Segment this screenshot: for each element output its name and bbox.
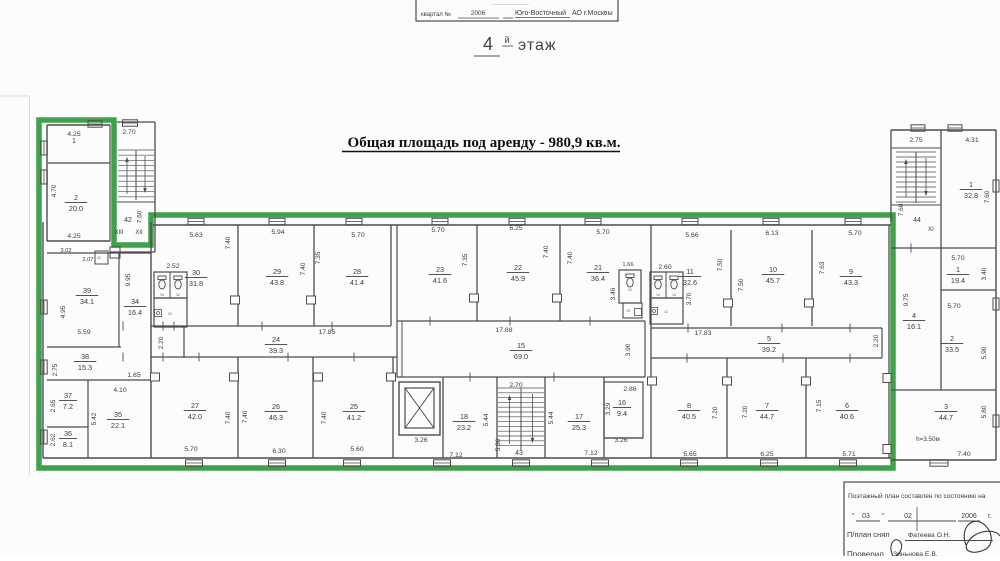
svg-text:44.7: 44.7 bbox=[939, 413, 953, 422]
svg-text:ХII: ХII bbox=[135, 230, 143, 236]
svg-text:17.85: 17.85 bbox=[318, 329, 335, 336]
svg-text:квартал №: квартал № bbox=[421, 11, 451, 18]
svg-text:1.66: 1.66 bbox=[622, 262, 633, 268]
svg-text:4.10: 4.10 bbox=[113, 387, 126, 394]
svg-text:42.0: 42.0 bbox=[188, 412, 202, 421]
svg-text:5.59: 5.59 bbox=[77, 329, 90, 336]
svg-text:4.31: 4.31 bbox=[965, 137, 978, 144]
svg-text:5.70: 5.70 bbox=[184, 446, 197, 453]
svg-text:7.60: 7.60 bbox=[137, 210, 144, 223]
svg-text:22: 22 bbox=[514, 263, 522, 272]
svg-text:39: 39 bbox=[83, 286, 91, 295]
svg-text:17.83: 17.83 bbox=[694, 330, 711, 337]
svg-text:1: 1 bbox=[969, 180, 973, 189]
svg-text:16.4: 16.4 bbox=[128, 308, 142, 317]
svg-text:1: 1 bbox=[956, 265, 960, 274]
svg-text:й: й bbox=[504, 35, 509, 45]
svg-text:19: 19 bbox=[626, 309, 630, 313]
svg-text:35: 35 bbox=[114, 410, 122, 419]
svg-text:3.29: 3.29 bbox=[605, 402, 612, 415]
svg-text:7.63: 7.63 bbox=[819, 261, 826, 274]
svg-text:4.70: 4.70 bbox=[51, 184, 58, 197]
svg-text:7.60: 7.60 bbox=[898, 203, 905, 216]
svg-text:34: 34 bbox=[131, 297, 139, 306]
svg-text:7.12: 7.12 bbox=[449, 452, 462, 459]
svg-text:03: 03 bbox=[862, 513, 870, 520]
svg-text:3.02: 3.02 bbox=[60, 248, 71, 254]
svg-text:31.8: 31.8 bbox=[189, 279, 203, 288]
svg-text:30: 30 bbox=[192, 268, 200, 277]
svg-text:5.30: 5.30 bbox=[495, 438, 502, 451]
svg-text:44.7: 44.7 bbox=[760, 412, 774, 421]
svg-text:2.20: 2.20 bbox=[158, 336, 165, 349]
svg-text:2.20: 2.20 bbox=[873, 334, 880, 347]
svg-text:7: 7 bbox=[765, 401, 769, 410]
svg-text:5.71: 5.71 bbox=[842, 451, 855, 458]
svg-text:5.65: 5.65 bbox=[683, 451, 696, 458]
svg-text:5.70: 5.70 bbox=[351, 232, 364, 239]
svg-text:7.40: 7.40 bbox=[543, 245, 550, 258]
svg-text:5.70: 5.70 bbox=[848, 230, 861, 237]
svg-text:33: 33 bbox=[160, 293, 164, 297]
svg-text:3.46: 3.46 bbox=[610, 287, 617, 300]
svg-text:5.44: 5.44 bbox=[548, 411, 555, 424]
svg-text:45.9: 45.9 bbox=[511, 274, 525, 283]
svg-text:7.40: 7.40 bbox=[225, 411, 232, 424]
svg-text:5.44: 5.44 bbox=[483, 413, 490, 426]
svg-text:3: 3 bbox=[944, 402, 948, 411]
svg-text:5.80: 5.80 bbox=[981, 405, 988, 418]
svg-text:5.70: 5.70 bbox=[947, 303, 960, 310]
svg-text:39.3: 39.3 bbox=[269, 346, 283, 355]
svg-text:ХIII: ХIII bbox=[114, 230, 123, 236]
svg-text:6.13: 6.13 bbox=[765, 230, 778, 237]
svg-text:7.50: 7.50 bbox=[717, 258, 724, 271]
svg-text:5.70: 5.70 bbox=[951, 255, 964, 262]
svg-text:14: 14 bbox=[656, 293, 660, 297]
svg-text:8: 8 bbox=[687, 401, 691, 410]
svg-text:43: 43 bbox=[515, 450, 523, 457]
svg-text:2.70: 2.70 bbox=[122, 129, 135, 136]
svg-text:7.40: 7.40 bbox=[300, 262, 307, 275]
svg-text:3.90: 3.90 bbox=[625, 343, 632, 356]
svg-text:Проверил: Проверил bbox=[847, 550, 884, 556]
svg-text:15: 15 bbox=[517, 341, 525, 350]
svg-text:16: 16 bbox=[618, 398, 626, 407]
svg-text:23: 23 bbox=[436, 265, 444, 274]
svg-text:7.12: 7.12 bbox=[584, 450, 597, 457]
svg-text:7.20: 7.20 bbox=[712, 406, 719, 419]
svg-text:41.6: 41.6 bbox=[433, 276, 447, 285]
svg-text:43.3: 43.3 bbox=[844, 278, 858, 287]
svg-text:40.6: 40.6 bbox=[840, 412, 854, 421]
svg-text:20.0: 20.0 bbox=[69, 204, 83, 213]
svg-text:1: 1 bbox=[72, 138, 76, 145]
svg-text:20: 20 bbox=[628, 288, 632, 292]
svg-text:2.75: 2.75 bbox=[909, 137, 922, 144]
svg-text:4.25: 4.25 bbox=[67, 233, 80, 240]
svg-text:2.07: 2.07 bbox=[82, 257, 93, 263]
svg-text:19.4: 19.4 bbox=[951, 276, 965, 285]
svg-text:21: 21 bbox=[594, 263, 602, 272]
svg-text:41.2: 41.2 bbox=[347, 413, 361, 422]
svg-text:25.3: 25.3 bbox=[572, 423, 586, 432]
svg-text:26: 26 bbox=[272, 402, 280, 411]
svg-text:4.25: 4.25 bbox=[67, 131, 80, 138]
svg-text:27: 27 bbox=[191, 401, 199, 410]
svg-text:7.40: 7.40 bbox=[225, 236, 232, 249]
svg-text:45.7: 45.7 bbox=[766, 276, 780, 285]
svg-text:18: 18 bbox=[460, 412, 468, 421]
svg-text:Юго-Восточный: Юго-Восточный bbox=[515, 9, 566, 17]
svg-text:42: 42 bbox=[124, 217, 132, 224]
svg-text:17: 17 bbox=[575, 412, 583, 421]
svg-text:АО г.Москвы: АО г.Москвы bbox=[572, 10, 613, 17]
svg-text:2.86: 2.86 bbox=[623, 386, 636, 393]
svg-text:8.1: 8.1 bbox=[63, 440, 73, 449]
svg-text:9.75: 9.75 bbox=[903, 293, 910, 306]
svg-text:32.6: 32.6 bbox=[683, 278, 697, 287]
svg-text:02: 02 bbox=[904, 513, 912, 520]
svg-text:5.42: 5.42 bbox=[91, 412, 98, 425]
svg-text:этаж: этаж bbox=[518, 37, 557, 54]
svg-text:Общая площадь под аренду - 980: Общая площадь под аренду - 980,9 кв.м. bbox=[348, 135, 621, 151]
svg-text:39.2: 39.2 bbox=[762, 345, 776, 354]
svg-text:5.70: 5.70 bbox=[596, 229, 609, 236]
svg-text:6.25: 6.25 bbox=[760, 451, 773, 458]
svg-text:9.4: 9.4 bbox=[617, 409, 627, 418]
svg-text:9: 9 bbox=[849, 267, 853, 276]
svg-text:5: 5 bbox=[767, 334, 771, 343]
svg-text:5.70: 5.70 bbox=[431, 227, 444, 234]
svg-text:3.26: 3.26 bbox=[614, 437, 627, 444]
svg-text:5.63: 5.63 bbox=[189, 232, 202, 239]
svg-text:41.4: 41.4 bbox=[350, 278, 364, 287]
svg-text:5.60: 5.60 bbox=[350, 446, 363, 453]
svg-text:7.35: 7.35 bbox=[462, 253, 469, 266]
svg-text:2.62: 2.62 bbox=[50, 433, 57, 446]
svg-text:3.40: 3.40 bbox=[981, 267, 988, 280]
svg-text:46.3: 46.3 bbox=[269, 413, 283, 422]
svg-text:2.60: 2.60 bbox=[658, 264, 671, 271]
svg-text:36.4: 36.4 bbox=[591, 274, 605, 283]
svg-text:7.20: 7.20 bbox=[742, 405, 749, 418]
svg-text:16.1: 16.1 bbox=[907, 322, 921, 331]
svg-text:69.0: 69.0 bbox=[514, 352, 528, 361]
svg-text:31: 31 bbox=[168, 312, 172, 316]
svg-text:9.95: 9.95 bbox=[125, 273, 132, 286]
svg-text:11: 11 bbox=[686, 267, 694, 276]
svg-text:2006: 2006 bbox=[471, 10, 486, 17]
svg-text:г.: г. bbox=[988, 513, 992, 520]
svg-text:29: 29 bbox=[273, 267, 281, 276]
svg-text:41: 41 bbox=[97, 256, 101, 260]
svg-text:40.5: 40.5 bbox=[682, 412, 696, 421]
svg-text:_________________: _________________ bbox=[490, 0, 530, 5]
svg-text:6: 6 bbox=[845, 401, 849, 410]
svg-text:32: 32 bbox=[176, 293, 180, 297]
svg-text:43.8: 43.8 bbox=[270, 278, 284, 287]
svg-text:2.52: 2.52 bbox=[166, 263, 179, 270]
svg-text:2006: 2006 bbox=[961, 513, 977, 520]
svg-text:П/план снял: П/план снял bbox=[847, 530, 890, 539]
svg-text:33.5: 33.5 bbox=[945, 345, 959, 354]
svg-text:7.60: 7.60 bbox=[984, 190, 991, 203]
svg-text:7.40: 7.40 bbox=[957, 451, 970, 458]
svg-text:5.90: 5.90 bbox=[981, 346, 988, 359]
svg-text:17.88: 17.88 bbox=[495, 327, 512, 334]
svg-text:2.70: 2.70 bbox=[509, 382, 522, 389]
svg-text:44: 44 bbox=[913, 217, 921, 224]
svg-text:h=3.50м: h=3.50м bbox=[916, 436, 940, 443]
svg-text:7.35: 7.35 bbox=[315, 251, 322, 264]
svg-text:7.2: 7.2 bbox=[63, 402, 73, 411]
svg-text:23.2: 23.2 bbox=[457, 423, 471, 432]
svg-text:1.65: 1.65 bbox=[127, 372, 140, 379]
svg-text:7.50: 7.50 bbox=[738, 278, 745, 291]
svg-text:2.75: 2.75 bbox=[52, 363, 59, 376]
svg-text:Фатеева О.Н.: Фатеева О.Н. bbox=[908, 532, 951, 539]
svg-text:5.66: 5.66 bbox=[685, 232, 698, 239]
svg-text:36: 36 bbox=[64, 429, 72, 438]
svg-text:25: 25 bbox=[350, 402, 358, 411]
svg-text:12: 12 bbox=[664, 310, 668, 314]
svg-text:10: 10 bbox=[769, 265, 777, 274]
svg-text:6.30: 6.30 bbox=[272, 448, 285, 455]
svg-text:15.3: 15.3 bbox=[78, 363, 92, 372]
svg-text:13: 13 bbox=[672, 293, 676, 297]
svg-text:38: 38 bbox=[81, 352, 89, 361]
svg-text:7.40: 7.40 bbox=[321, 411, 328, 424]
svg-text:37: 37 bbox=[64, 391, 72, 400]
svg-text:7.40: 7.40 bbox=[567, 251, 574, 264]
svg-text:32.8: 32.8 bbox=[964, 191, 978, 200]
svg-text:34.1: 34.1 bbox=[80, 297, 94, 306]
svg-text:2.65: 2.65 bbox=[50, 399, 57, 412]
svg-text:7.40: 7.40 bbox=[242, 410, 249, 423]
svg-text:4: 4 bbox=[912, 311, 916, 320]
svg-text:7.15: 7.15 bbox=[816, 399, 823, 412]
svg-text:4.95: 4.95 bbox=[60, 305, 67, 318]
svg-text:2: 2 bbox=[74, 193, 78, 202]
svg-text:3.70: 3.70 bbox=[686, 292, 693, 305]
svg-text:24: 24 bbox=[272, 335, 280, 344]
svg-text:2: 2 bbox=[950, 334, 954, 343]
svg-text:6.25: 6.25 bbox=[509, 225, 522, 232]
svg-text:22.1: 22.1 bbox=[111, 421, 125, 430]
svg-text:Поэтажный план составлен по со: Поэтажный план составлен по состоянию на bbox=[848, 492, 986, 500]
svg-text:28: 28 bbox=[353, 267, 361, 276]
svg-text:XI: XI bbox=[928, 227, 934, 233]
svg-text:4: 4 bbox=[483, 34, 493, 54]
svg-text:3.26: 3.26 bbox=[414, 437, 427, 444]
svg-text:5.94: 5.94 bbox=[271, 229, 284, 236]
